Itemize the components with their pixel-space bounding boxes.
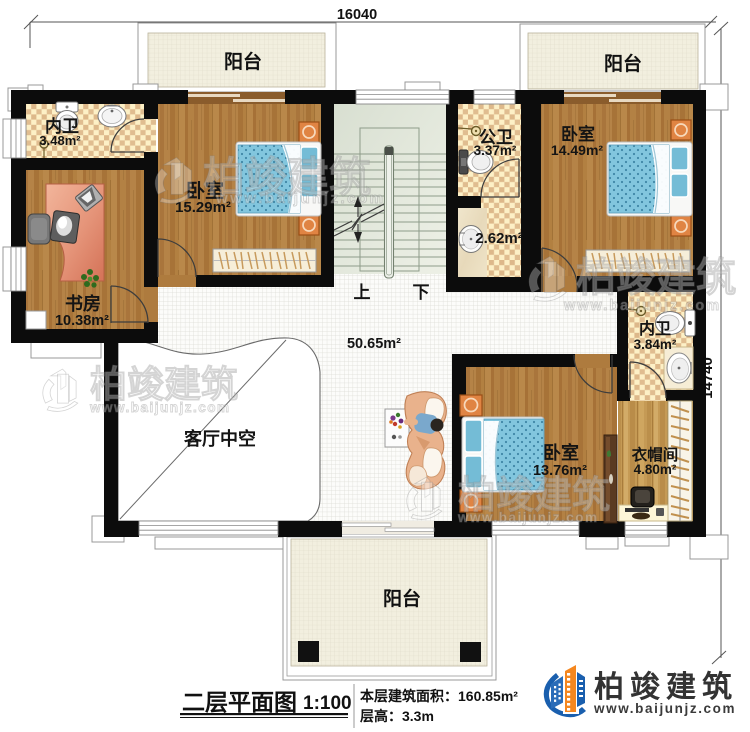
svg-text:二层平面图: 二层平面图 (182, 689, 297, 715)
svg-text:14.49m²: 14.49m² (551, 142, 603, 158)
svg-text:www.baijunjz.com: www.baijunjz.com (457, 510, 599, 525)
svg-text:阳台: 阳台 (604, 52, 642, 75)
svg-text:16040: 16040 (337, 7, 377, 23)
svg-text:上: 上 (354, 283, 371, 302)
svg-text:50.65m²: 50.65m² (347, 336, 401, 352)
svg-text:柏竣建筑: 柏竣建筑 (594, 670, 738, 704)
svg-text:2.62m²: 2.62m² (475, 230, 523, 247)
svg-text:柏竣建筑: 柏竣建筑 (90, 363, 238, 405)
svg-text:阳台: 阳台 (383, 587, 421, 610)
svg-text:柏竣建筑: 柏竣建筑 (576, 256, 736, 300)
svg-text:3.48m²: 3.48m² (39, 133, 81, 148)
svg-text:客厅中空: 客厅中空 (184, 428, 256, 449)
svg-text:本层建筑面积：160.85m²: 本层建筑面积：160.85m² (360, 688, 518, 704)
svg-text:3.37m²: 3.37m² (474, 143, 517, 158)
svg-text:卧室: 卧室 (543, 442, 579, 463)
svg-text:www.baijunjz.com: www.baijunjz.com (563, 298, 721, 314)
svg-text:阳台: 阳台 (224, 50, 262, 73)
svg-text:www.baijunjz.com: www.baijunjz.com (593, 701, 736, 716)
svg-text:3.84m²: 3.84m² (634, 337, 677, 352)
svg-text:卧室: 卧室 (561, 124, 595, 144)
svg-text:书房: 书房 (65, 293, 101, 314)
svg-text:层高：3.3m: 层高：3.3m (360, 708, 434, 724)
svg-text:www.baijunjz.com: www.baijunjz.com (89, 400, 231, 415)
svg-text:4.80m²: 4.80m² (634, 462, 677, 477)
svg-text:10.38m²: 10.38m² (55, 313, 109, 329)
svg-text:内卫: 内卫 (639, 319, 671, 338)
svg-text:www.baijunjz.com: www.baijunjz.com (215, 190, 385, 207)
svg-text:1:100: 1:100 (303, 693, 352, 714)
svg-text:下: 下 (413, 283, 430, 302)
